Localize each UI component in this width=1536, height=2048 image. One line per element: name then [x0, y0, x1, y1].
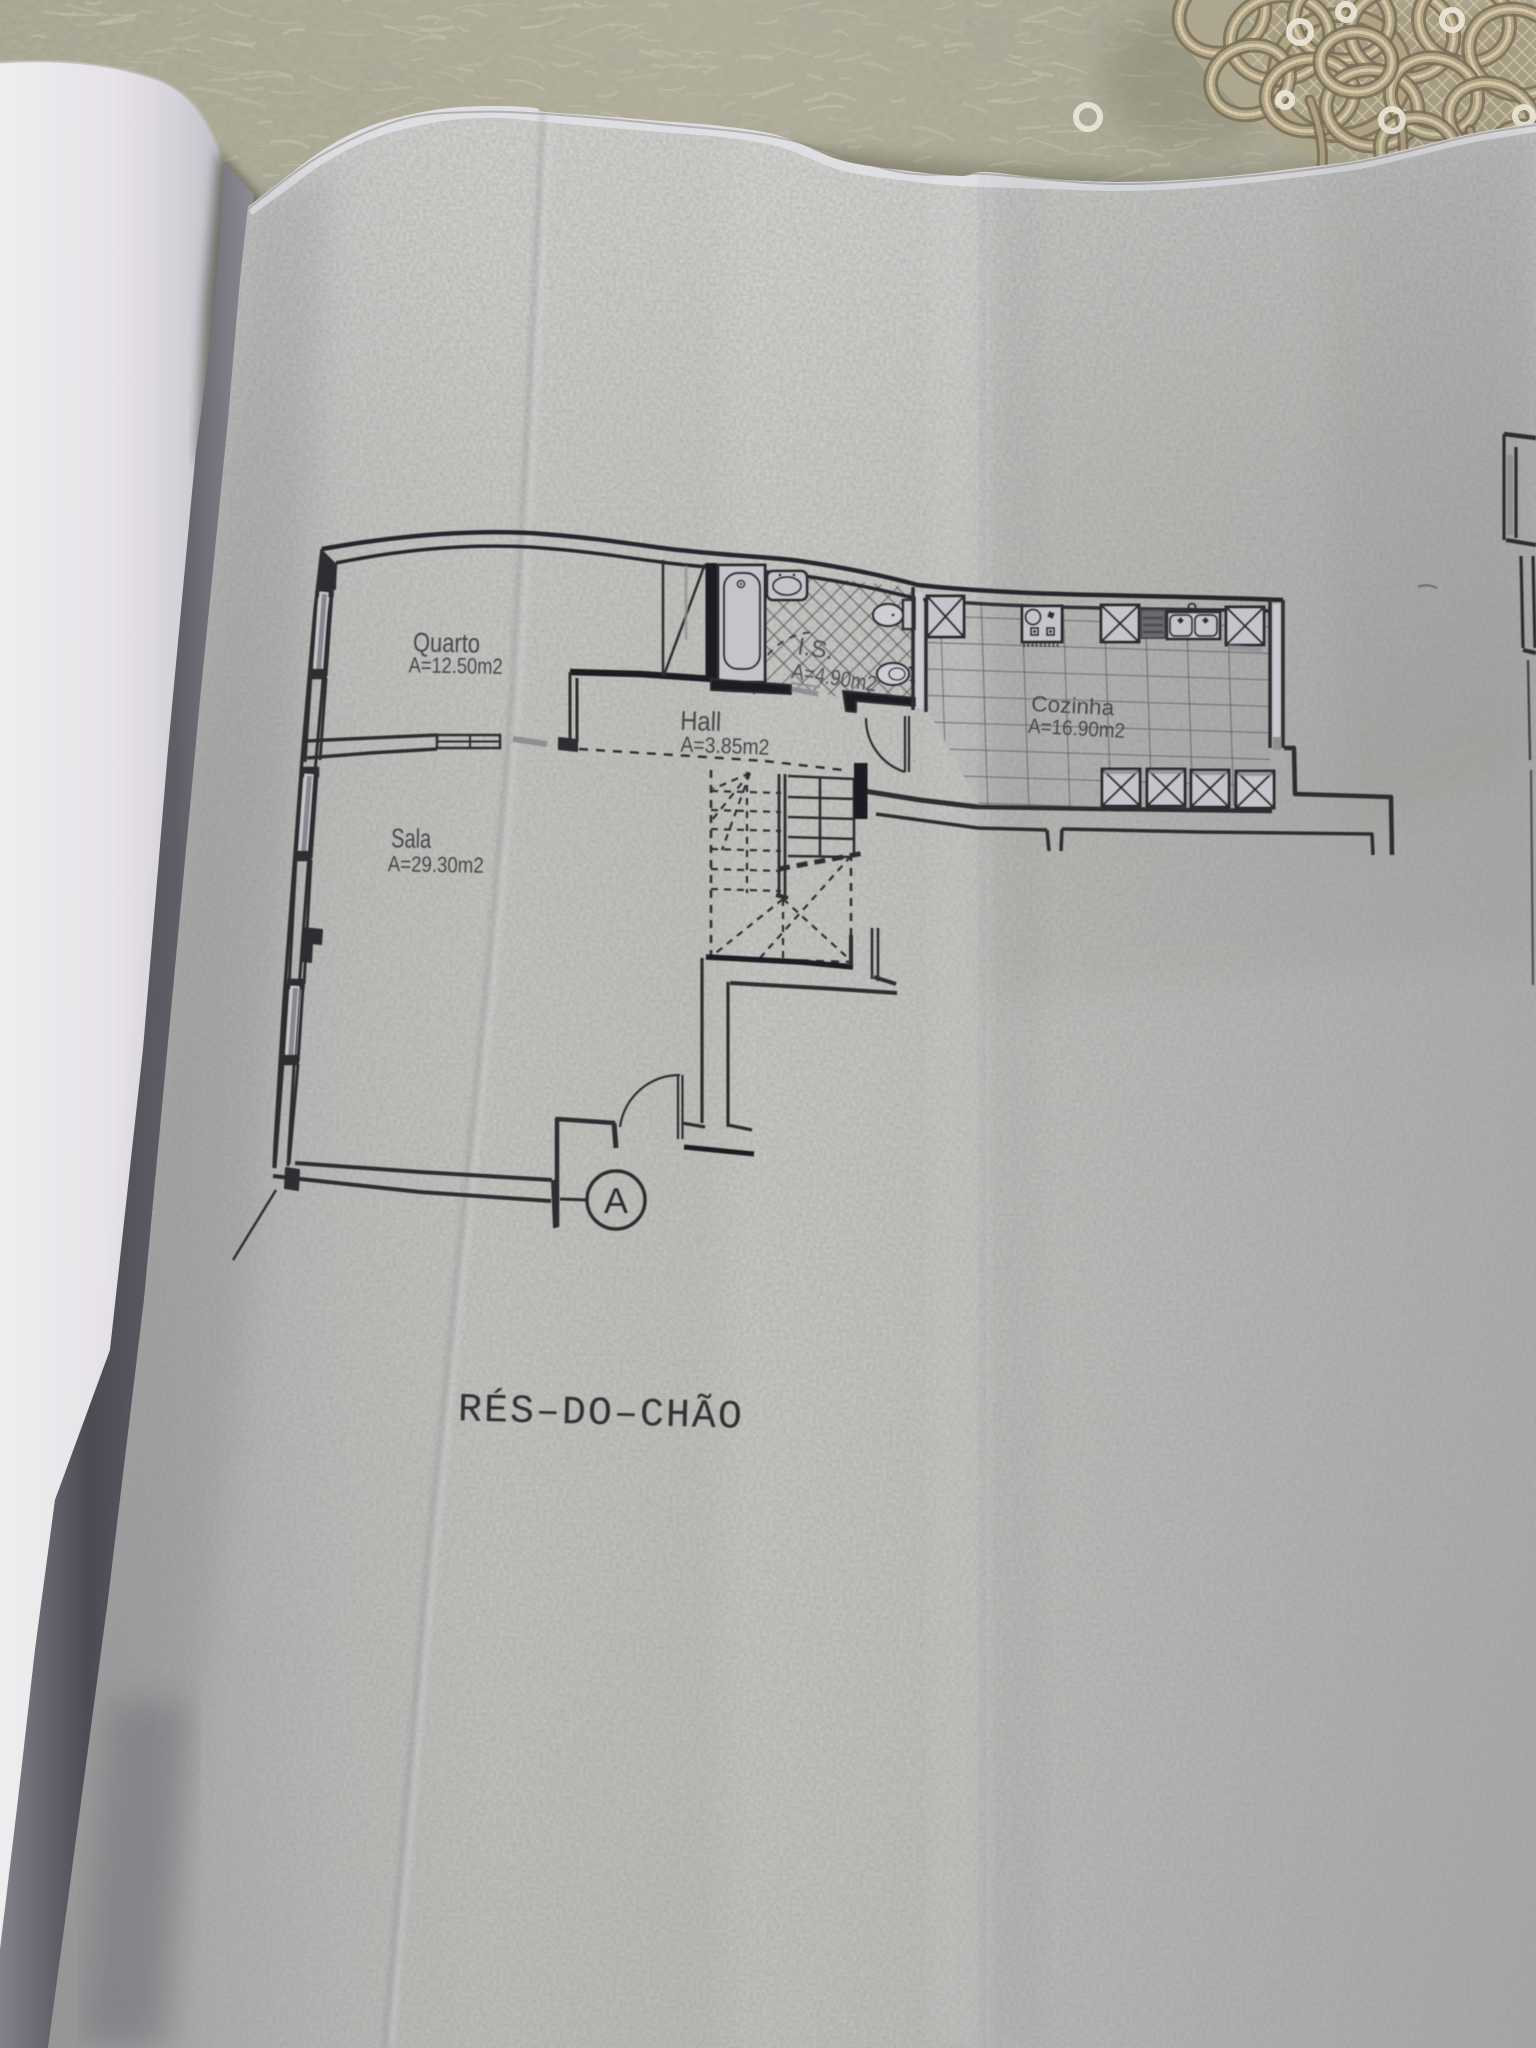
svg-text:A=3.85m2: A=3.85m2: [680, 732, 770, 760]
svg-text:A=12.50m2: A=12.50m2: [408, 652, 502, 679]
svg-text:A=29.30m2: A=29.30m2: [388, 851, 484, 878]
svg-text:A: A: [604, 1180, 628, 1221]
svg-text:Sala: Sala: [391, 823, 432, 854]
svg-text:RÉS–DO–CHÃO: RÉS–DO–CHÃO: [457, 1386, 744, 1440]
